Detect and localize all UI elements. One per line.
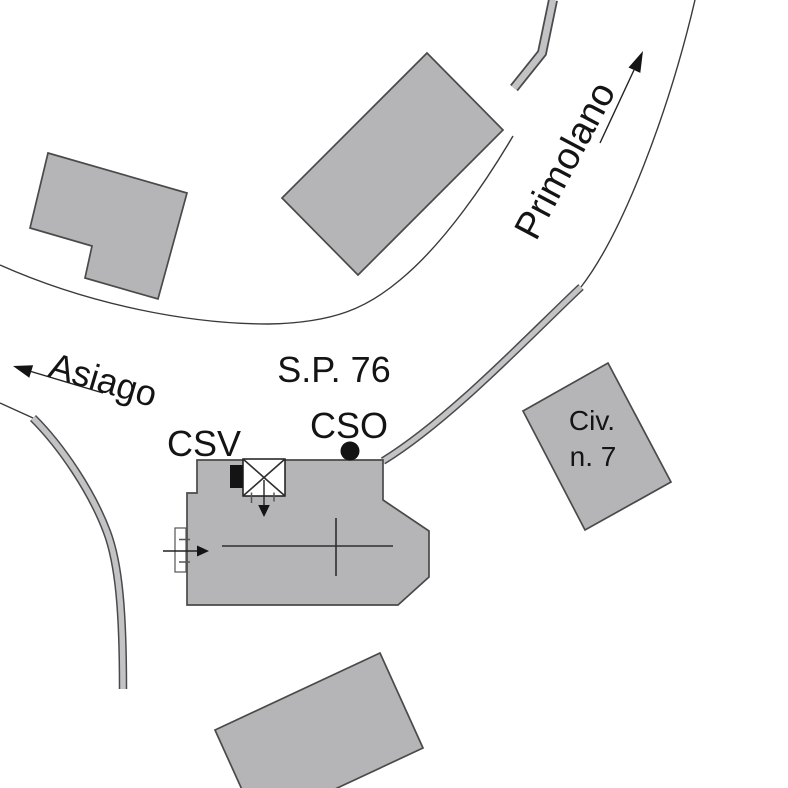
label-civic-number-line1: Civ. (569, 405, 615, 436)
entrance-door-rect (175, 528, 186, 572)
curb-band-left (33, 418, 123, 689)
building-top-left (30, 153, 187, 299)
asiago-arrowhead-icon (13, 365, 33, 377)
curb-band-left-outline (33, 418, 123, 689)
label-civic-number-line2: n. 7 (570, 441, 617, 472)
label-destination-asiago: Asiago (45, 344, 162, 415)
site-map-page: S.P. 76 CSO CSV Asiago Primolano Civ. n.… (0, 0, 788, 788)
building-bottom (215, 653, 423, 788)
curb-band-top (514, 0, 553, 88)
label-csv: CSV (167, 423, 241, 464)
csv-black-rect-marker (230, 465, 243, 488)
label-road-sp76: S.P. 76 (277, 349, 390, 390)
building-main (187, 460, 429, 605)
site-map-canvas: S.P. 76 CSO CSV Asiago Primolano Civ. n.… (0, 0, 788, 788)
building-top-center (282, 53, 503, 275)
road-edge-stub-line (0, 403, 33, 418)
label-destination-primolano: Primolano (507, 75, 624, 246)
label-cso: CSO (310, 405, 388, 446)
primolano-arrowhead-icon (629, 51, 644, 73)
